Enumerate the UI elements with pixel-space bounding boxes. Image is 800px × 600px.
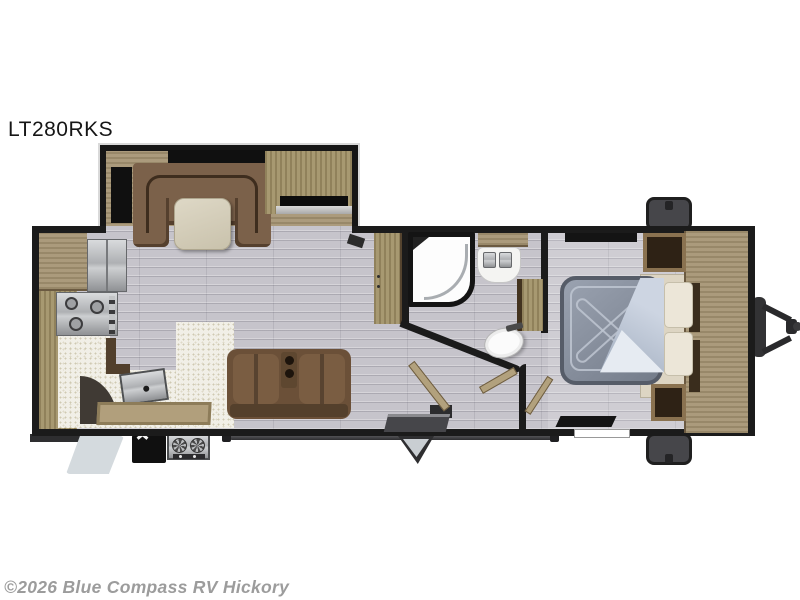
bathroom-vanity	[477, 247, 521, 283]
burner-icon	[65, 297, 78, 310]
burner-icon	[190, 438, 205, 453]
range-knobs	[109, 296, 115, 334]
tv-screen	[280, 196, 348, 206]
nightstand-bottom	[651, 384, 686, 421]
nightstand-inset	[647, 237, 682, 268]
faucet-icon	[143, 385, 150, 392]
bedroom-window-bottom	[555, 416, 616, 427]
slide-window-rear	[111, 167, 132, 223]
floorplan-model-title: LT280RKS	[8, 118, 113, 142]
slide-window-top	[168, 150, 265, 163]
cupholder-icon	[285, 369, 294, 378]
exterior-box-latch	[665, 454, 673, 463]
tv-cabinet-shelf	[276, 206, 352, 214]
vanity-sink	[483, 252, 496, 268]
theater-sofa	[227, 349, 351, 419]
pantry-handle	[377, 285, 380, 288]
fridge-divider	[106, 240, 108, 291]
overhead-cabinet	[39, 233, 87, 291]
hitch-aframe-lower	[762, 335, 792, 354]
shower-glass-curve	[424, 244, 468, 300]
pillow	[664, 332, 693, 376]
shower	[408, 232, 475, 307]
bedroom-window-top	[565, 233, 637, 242]
nightstand-inset	[655, 388, 682, 417]
exterior-box-latch	[665, 201, 673, 210]
dinette-table	[174, 198, 231, 250]
hitch-ball	[793, 322, 800, 331]
pantry-handle	[377, 275, 380, 278]
entry-step-platform	[384, 414, 450, 432]
pantry-cabinet	[374, 233, 402, 324]
copyright-watermark: ©2026 Blue Compass RV Hickory	[4, 577, 289, 598]
sofa-backrest	[230, 404, 348, 417]
bathroom-wall-lower	[519, 364, 526, 430]
nightstand-top	[643, 233, 686, 272]
pillow	[664, 282, 693, 328]
fold-out-step	[398, 436, 434, 464]
cupholder-icon	[285, 356, 294, 365]
floorplan-image: LT280RKS ©2026 Blue Compass RV Hickory	[0, 0, 800, 600]
baggage-door	[574, 429, 630, 438]
counter-ledge	[96, 402, 211, 425]
front-wardrobe	[684, 231, 748, 433]
cooktop-knob-strip	[173, 454, 205, 459]
vanity-sink	[499, 252, 512, 268]
sofa-seat-right	[299, 354, 345, 404]
exterior-box-bottom	[646, 433, 692, 465]
refrigerator	[87, 239, 127, 292]
knob-dot	[179, 455, 182, 458]
burner-icon	[69, 317, 83, 331]
outdoor-cooktop	[167, 433, 210, 460]
vanity-overhead-cabinet	[478, 233, 528, 247]
knob-dot	[193, 455, 196, 458]
burner-icon	[90, 300, 104, 314]
range-cooktop	[56, 292, 118, 336]
kitchen-sink	[119, 368, 169, 406]
burner-icon	[172, 438, 187, 453]
fold-out-step-tread	[403, 439, 429, 457]
sofa-seat-left	[233, 354, 279, 404]
